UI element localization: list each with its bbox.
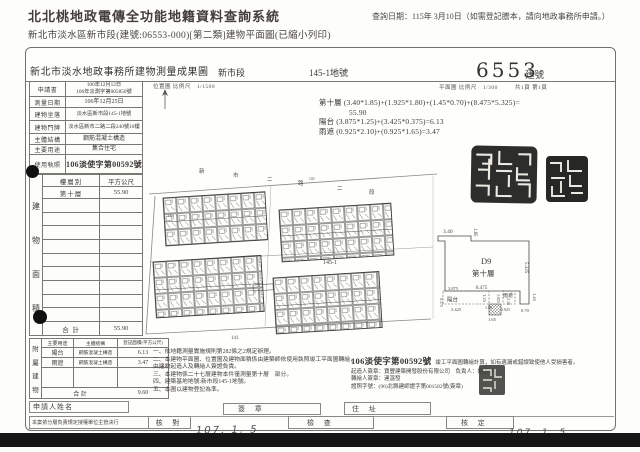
building-cluster-3 [153,255,264,317]
area-total-row: 合 計 55.90 [43,322,142,335]
info-value-2: 106年淡測字第005850號 [76,89,132,96]
check-label: 核 對 [148,417,190,428]
note-4: 四、建築基地地號:新市段145-1地號。 [153,379,357,387]
street-char: 新 [199,167,205,175]
delegate-box: 本案依分層負責規定授權單位主管決行 核 對 [29,416,191,429]
table-row: 建物坐落 淡水區新市段145-1地號 [30,108,142,121]
balcony-label: 陽台 [447,296,459,304]
punch-hole-1 [26,165,39,178]
empty-row [43,213,142,227]
empty-row [43,240,142,254]
street-number: 140 [309,177,315,181]
empty-row [43,267,142,281]
plan-scale: 平面圖 比例尺 1/300 [439,83,498,91]
note-1: 一、依地籍測量實施規則第282條之2規定辦理。 [153,349,357,357]
building-cluster-4 [273,272,382,334]
note-2: 二、本建物平面圖、位置圖及建物面積係由建築師依使用執照竣工平面圖轉繪，由建物起造… [153,357,357,372]
total-label: 合 計 [43,322,100,335]
info-label: 申請書 [30,82,66,96]
page-subtitle: 新北市淡水區新市段(建號:06553-000)[第二類]建物平面圖(已縮小列印) [28,27,331,41]
building-cluster-1 [163,192,268,246]
street-char: 二 [267,177,273,183]
note-5: 五、本圖以建物登記為準。 [153,387,357,395]
info-label: 建物門牌 [30,121,66,133]
dim-balcony-height: 1.25 [482,294,487,303]
annex-row-balcony: 陽台 鋼筋混凝土構造 6.13 [42,348,168,358]
area-data-row: 第十層 55.90 [43,187,142,199]
info-value: 淡水區新市段145-1地號 [77,111,132,118]
info-label: 建物坐落 [30,108,66,120]
unit-id: D9 [481,256,491,266]
empty-row [43,226,142,240]
survey-result-document: 新北市淡水地政事務所建物測量成果圖 新市段 145-1地號 6553 建號 平面… [25,47,616,431]
unit-detail-plan: 3.40 1.85 5.325 D9 第十層 8.475 3.875 1.25 … [419,214,559,349]
table-row: 申請書 106年12月12日106年淡測字第005850號 [30,82,142,97]
empty-row [43,199,142,213]
applicant-name-box: 申請人姓名 [29,401,129,413]
cert-line-1: 竣工平面圖轉繪計算，如有遺漏或錯誤致使他人受損害者。 [435,360,578,366]
seal-stamps [469,144,594,206]
dim-shelter-height: 2.10 [506,298,511,305]
dim-balcony-width-2: 3.425 [451,307,462,312]
dim-top-width: 3.40 [443,229,453,235]
table-row: 主要用途 集合住宅 [30,145,142,155]
empty-row [43,295,142,309]
dim-balcony-width: 3.875 [448,286,459,291]
parcel-label-3: 149 [167,213,175,218]
annex-row-shelter: 雨遮 鋼筋混凝土構造 3.47 [42,358,168,368]
seal-stamp-large [470,145,537,203]
empty-row [42,368,168,388]
system-title: 北北桃地政電傳全功能地籍資料查詢系統 [28,6,280,25]
parcel-number: 145-1地號 [309,66,348,79]
dim-shelter-width: 0.925 [501,307,510,312]
table-row: 建物門牌 淡水區新市二路二段240號10樓 [30,121,142,134]
annex-side-label: 附 屬 建 物 [30,339,42,398]
query-result-page: 北北桃地政電傳全功能地籍資料查詢系統 查詢日期：115年 3月10日（如需登記謄… [0,0,640,452]
notes-list: 一、依地籍測量實施規則第282條之2規定辦理。 二、本建物平面圖、位置圖及建物面… [153,349,357,395]
floor-cell: 第十層 [43,187,100,198]
cert-seal-stamp [478,364,506,396]
empty-row [43,254,142,268]
bottom-rule [190,416,614,417]
dim-mid-width: 8.475 [476,286,488,291]
parcel-label-2: 141 [231,336,239,341]
dim-right-notch-height: 1.45 [532,293,537,302]
dim-right-notch-width: 0.70 [521,308,530,313]
road-edge-line [149,174,437,194]
section-name: 新市段 [218,66,245,79]
empty-row [43,281,142,295]
info-value: 鋼筋混凝土構造 [83,136,125,143]
inspect-box: 檢 查 [288,416,374,429]
scan-edge-bar [0,433,640,447]
license-number-big: 106淡使字第00592號 [351,356,431,366]
table-row: 使用執照 106淡使字第00592號 [30,155,142,173]
street-char: 段 [369,188,375,196]
info-label: 主要用途 [30,145,66,154]
floor-area-table: 建 物 面 積 樓層別 平方公尺 第十層 55.90 [29,174,143,336]
info-label: 測量日期 [30,97,66,107]
info-value: 淡水區新市二路二段240號10樓 [68,124,140,131]
info-value: 106年12月12日 [87,82,121,89]
dim-balcony-offset: 0.375 [439,298,444,307]
query-date: 查詢日期：115年 3月10日（如需登記謄本，請向地政事務所申請。） [372,11,610,22]
punch-hole-2 [33,310,47,324]
street-char: 市 [233,171,239,179]
annex-total-row: 合 計 9.60 [42,388,168,398]
location-map: 新 市 二 路 140 二 段 [141,86,439,348]
empty-row [43,308,142,322]
license-number: 106淡使字第00592號 [66,161,142,168]
building-cluster-2 [279,203,394,262]
parcel-label: 145-1 [323,260,337,266]
sqm-cell: 55.90 [100,187,142,198]
building-number-unit: 建號 [525,67,544,81]
table-row: 主體結構 鋼筋混凝土構造 [30,134,142,145]
col-sqm: 平方公尺 [100,175,142,186]
address-box: 住 址 [344,402,431,415]
unit-floor: 第十層 [472,268,495,278]
dim-right-height: 5.325 [523,262,528,274]
info-value: 集合住宅 [92,146,116,153]
street-char: 路 [298,179,304,187]
col-floor: 樓層別 [43,175,100,186]
dim-segment-height: 1.80 [485,305,492,310]
approve-box: 核 定 [446,416,514,429]
dim-segment-width: 1.925 [496,294,501,303]
dim-top-height: 1.85 [472,228,477,237]
page-count: 共1頁 第1頁 [515,83,547,91]
total-value: 55.90 [100,322,142,335]
document-title: 新北市淡水地政事務所建物測量成果圖 [30,63,209,78]
area-header-row: 樓層別 平方公尺 [43,175,142,187]
signature-box: 簽 章 [223,403,321,415]
seal-stamp-small [546,156,588,202]
building-info-table: 申請書 106年12月12日106年淡測字第005850號 測量日期 106年1… [29,81,143,174]
info-label: 主體結構 [30,134,66,144]
dim-shelter-width-2: 1.65 [488,317,497,322]
table-row: 測量日期 106年12月25日 [30,97,142,108]
street-char: 二 [337,186,343,192]
info-value: 106年12月25日 [84,99,123,106]
